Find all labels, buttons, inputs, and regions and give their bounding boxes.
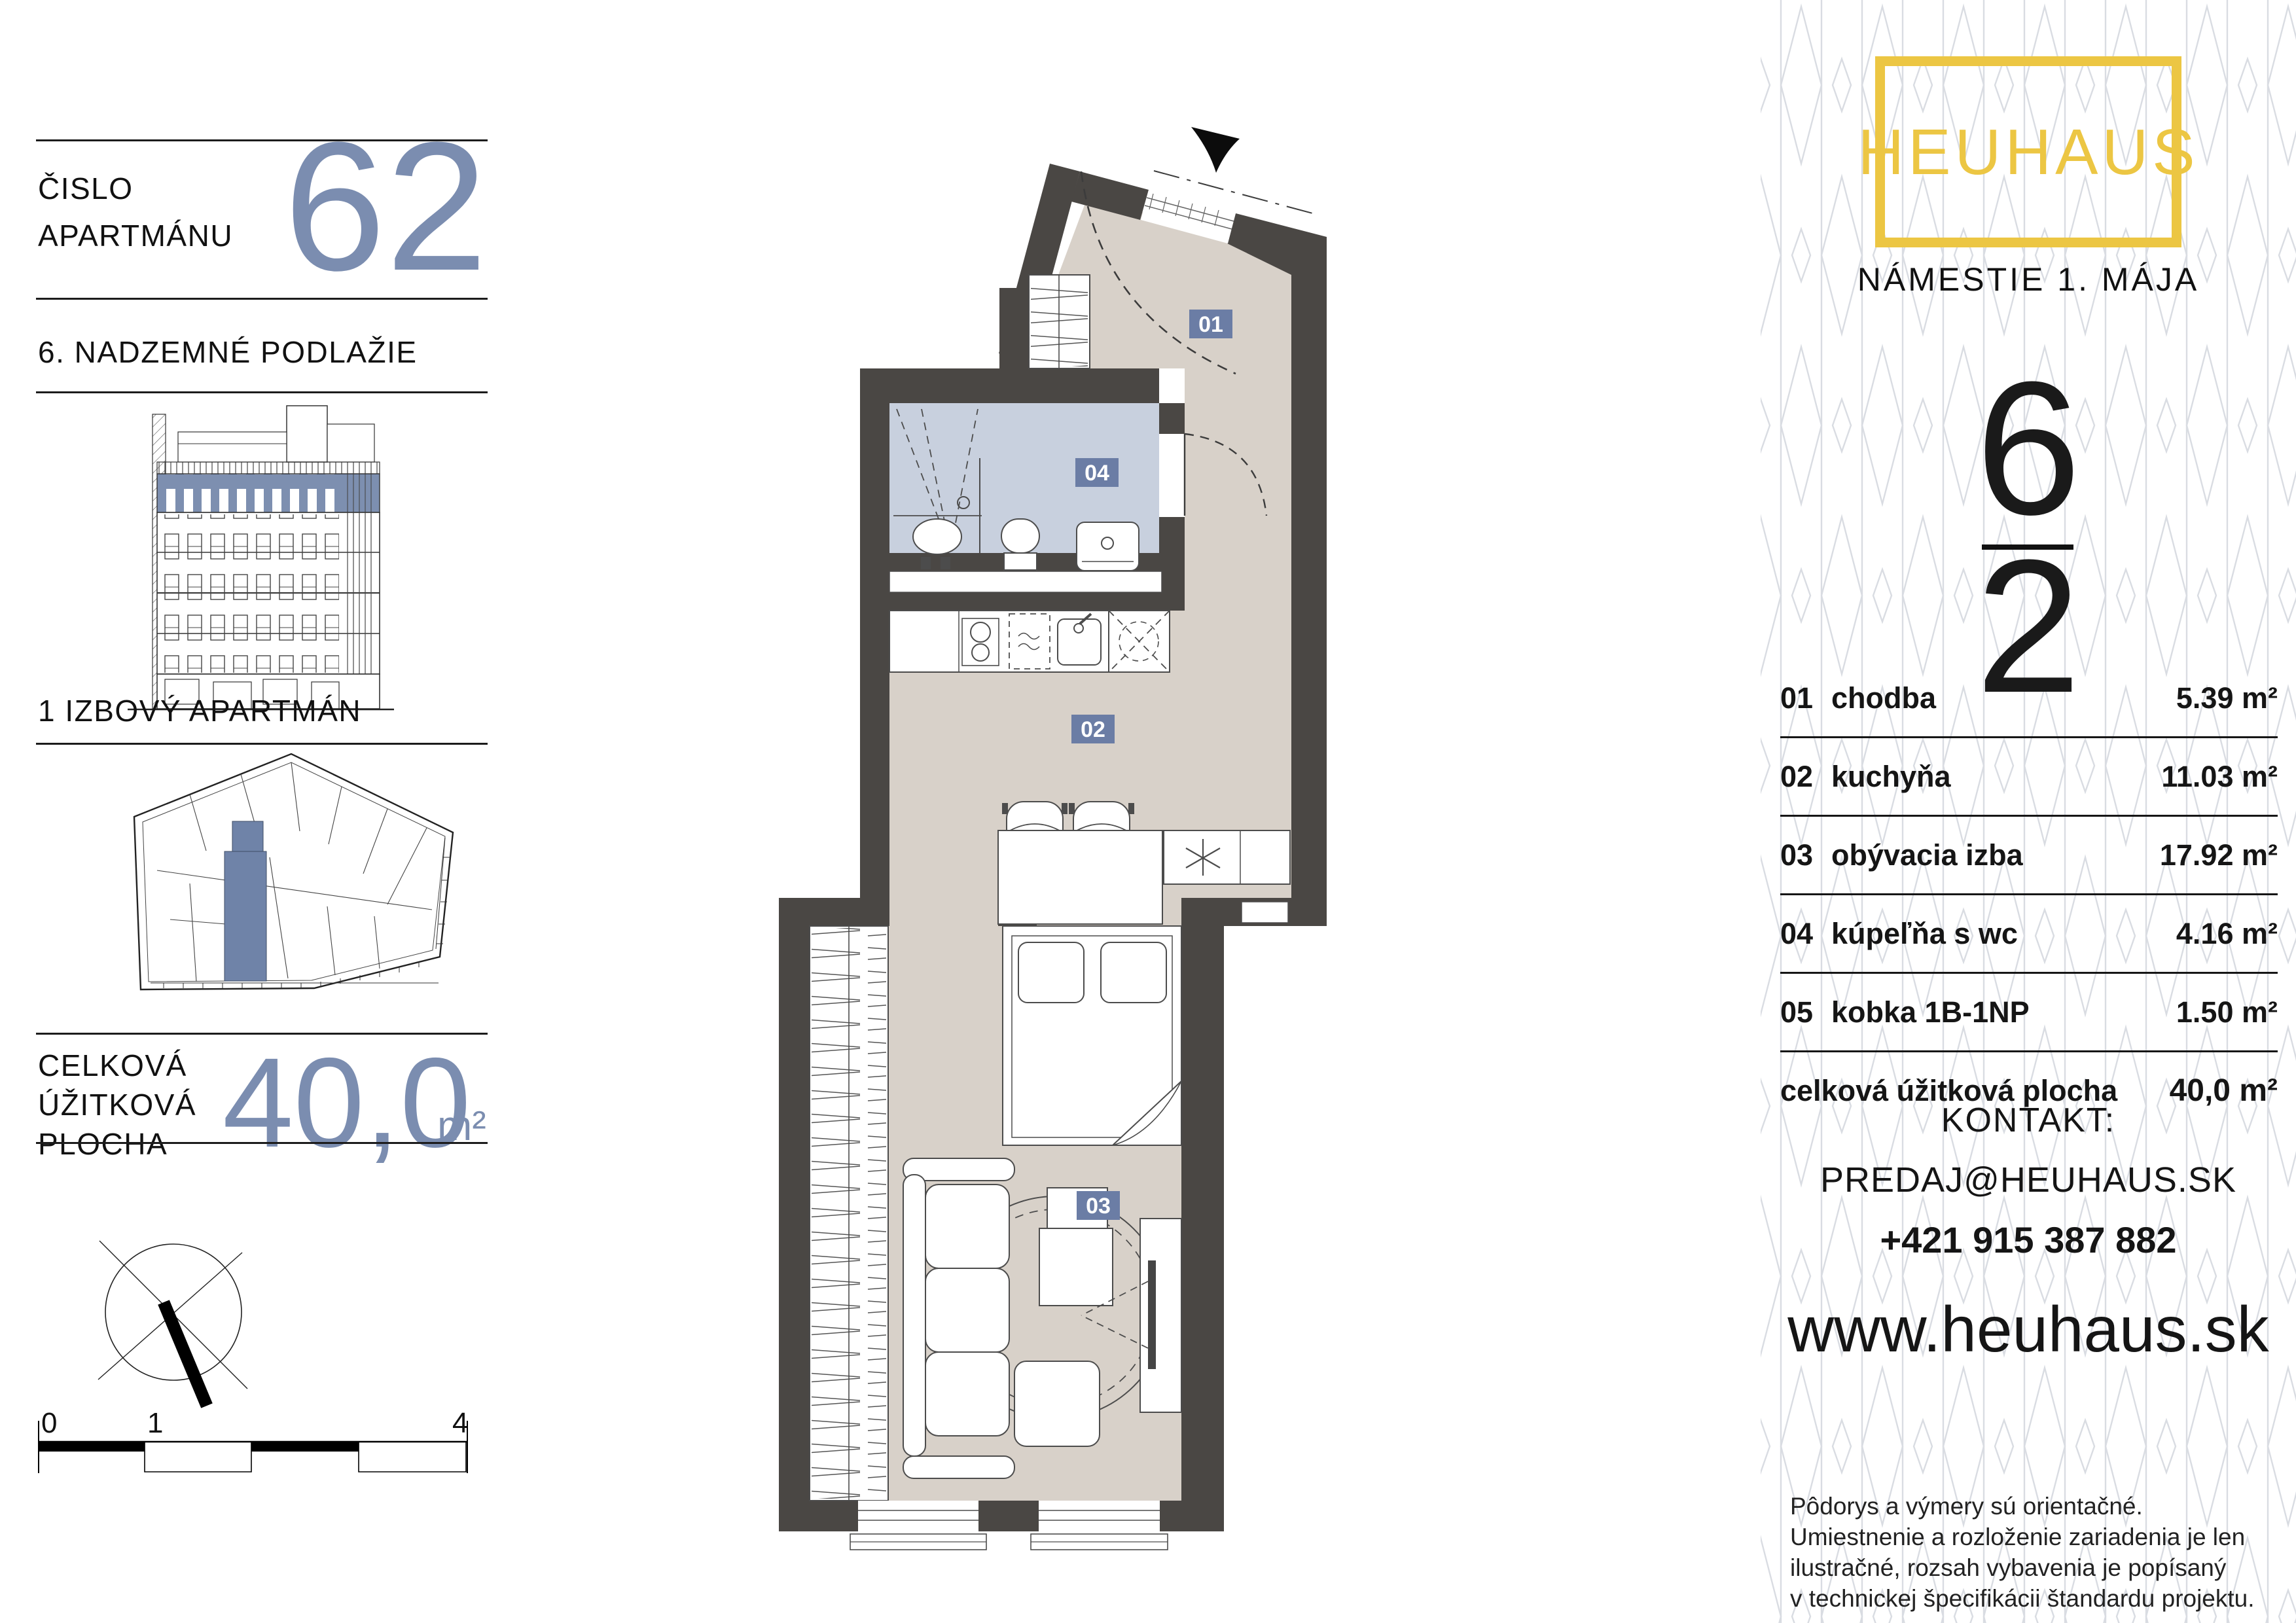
table-row: 01chodba 5.39 m² xyxy=(1780,660,2278,738)
ottoman xyxy=(1014,1361,1100,1446)
table-row: 03obývacia izba 17.92 m² xyxy=(1780,817,2278,895)
table-row: 02kuchyňa 11.03 m² xyxy=(1780,738,2278,817)
kitchen-counter xyxy=(889,611,1170,672)
disclaimer-line: Pôdorys a výmery sú orientačné. xyxy=(1790,1491,2268,1522)
room-label-kitchen: 02 xyxy=(1081,717,1105,742)
row-number: 03 xyxy=(1780,838,1831,872)
row-area: 11.03 m² xyxy=(2161,760,2278,794)
brand-logo: HEUHAUS xyxy=(1875,56,2181,247)
row-number: 02 xyxy=(1780,760,1831,794)
disclaimer-line: v technickej špecifikácii štandardu proj… xyxy=(1790,1583,2268,1614)
project-address: NÁMESTIE 1. MÁJA xyxy=(1761,260,2296,298)
row-name: chodba xyxy=(1831,681,1936,715)
contact-heading: KONTAKT: xyxy=(1761,1101,2296,1140)
disclaimer-line: ilustračné, rozsah vybavenia je popísaný xyxy=(1790,1552,2268,1583)
living-closet xyxy=(810,926,888,1501)
flyer-page: ČISLO APARTMÁNU 62 6. NADZEMNÉ PODLAŽIE xyxy=(0,0,2296,1623)
floor-number: 6 xyxy=(1761,353,2296,543)
row-number: 01 xyxy=(1780,681,1831,715)
brand-panel: HEUHAUS NÁMESTIE 1. MÁJA 6 2 01chodba 5.… xyxy=(1761,0,2296,1623)
row-name: kúpeľňa s wc xyxy=(1831,917,2018,950)
row-area: 5.39 m² xyxy=(2176,681,2278,715)
row-name: kuchyňa xyxy=(1831,760,1951,793)
row-area: 17.92 m² xyxy=(2160,838,2278,872)
table-row: 05kobka 1B-1NP 1.50 m² xyxy=(1780,974,2278,1052)
sideboard xyxy=(1164,830,1290,884)
contact-email: PREDAJ@HEUHAUS.SK xyxy=(1761,1160,2296,1200)
contact-phone: +421 915 387 882 xyxy=(1761,1219,2296,1261)
hall-niche xyxy=(889,571,1162,592)
website: www.heuhaus.sk xyxy=(1761,1293,2296,1366)
bathroom-door-opening xyxy=(1159,434,1185,517)
row-name: kobka 1B-1NP xyxy=(1831,995,2030,1029)
storage-inset xyxy=(1242,902,1288,923)
table-row: 04kúpeľňa s wc 4.16 m² xyxy=(1780,895,2278,974)
row-number: 04 xyxy=(1780,917,1831,951)
row-number: 05 xyxy=(1780,995,1831,1029)
tv-icon xyxy=(1148,1260,1156,1369)
room-table: 01chodba 5.39 m² 02kuchyňa 11.03 m² 03ob… xyxy=(1780,660,2278,1129)
room-label-bath: 04 xyxy=(1085,461,1109,486)
row-area: 1.50 m² xyxy=(2176,995,2278,1029)
row-name: obývacia izba xyxy=(1831,838,2023,872)
dining-table xyxy=(998,830,1162,924)
north-arrow-icon xyxy=(1191,127,1240,173)
room-label-living: 03 xyxy=(1086,1194,1111,1219)
room-label-hall: 01 xyxy=(1198,312,1223,337)
brand-logo-text: HEUHAUS xyxy=(1857,115,2198,189)
entry-wardrobe xyxy=(1029,275,1090,368)
bed xyxy=(1003,926,1181,1145)
disclaimer-line: Umiestnenie a rozloženie zariadenia je l… xyxy=(1790,1522,2268,1552)
row-area: 4.16 m² xyxy=(2176,917,2278,951)
